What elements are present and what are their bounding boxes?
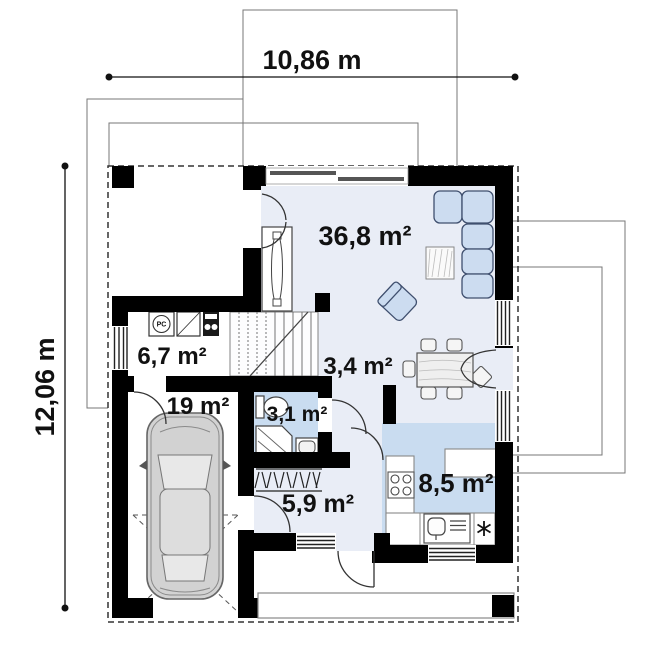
dimension-endpoint: [62, 163, 69, 170]
room-label-hall: 3,4 m²: [323, 353, 392, 380]
chair: [421, 339, 436, 351]
room-label-bathroom: 3,1 m²: [267, 403, 328, 426]
terrace-column: [112, 166, 134, 188]
room-label-entry: 5,9 m²: [282, 490, 354, 518]
cooktop-icon: [388, 472, 414, 498]
chair: [447, 339, 462, 351]
chair: [403, 361, 415, 377]
utility-stove-icon: [203, 312, 219, 336]
floor-plan-drawing: PC: [0, 0, 655, 655]
dimension-left: 12,06 m: [30, 163, 69, 612]
floor-plan: PC: [0, 0, 655, 655]
car-windshield: [158, 455, 212, 489]
dimension-endpoint: [106, 74, 113, 81]
car-mirror-left: [139, 460, 147, 470]
height-dimension-label: 12,06 m: [30, 337, 60, 436]
washer-label: PC: [157, 322, 167, 329]
stairs-floor: [230, 312, 318, 376]
washing-machine-icon: PC: [149, 312, 174, 336]
utility-counter: [177, 312, 200, 336]
dimension-endpoint: [512, 74, 519, 81]
room-label-living: 36,8 m²: [318, 221, 411, 251]
kitchen-sink-icon: [424, 514, 470, 543]
room-label-garage: 19 m²: [167, 393, 230, 420]
car-rear-window: [162, 555, 208, 581]
car: [139, 413, 231, 599]
room-label-kitchen: 8,5 m²: [418, 468, 493, 498]
rug: [426, 247, 454, 279]
car-roof: [160, 489, 210, 555]
width-dimension-label: 10,86 m: [262, 45, 361, 75]
tall-radiator: [262, 227, 292, 311]
chair: [421, 387, 436, 399]
chair: [447, 387, 462, 399]
entrance-door-arc: [338, 551, 374, 587]
dimension-endpoint: [62, 605, 69, 612]
living-room-window: [266, 168, 408, 184]
car-mirror-right: [223, 460, 231, 470]
room-label-utility: 6,7 m²: [137, 343, 206, 370]
porch-step: [258, 593, 514, 618]
